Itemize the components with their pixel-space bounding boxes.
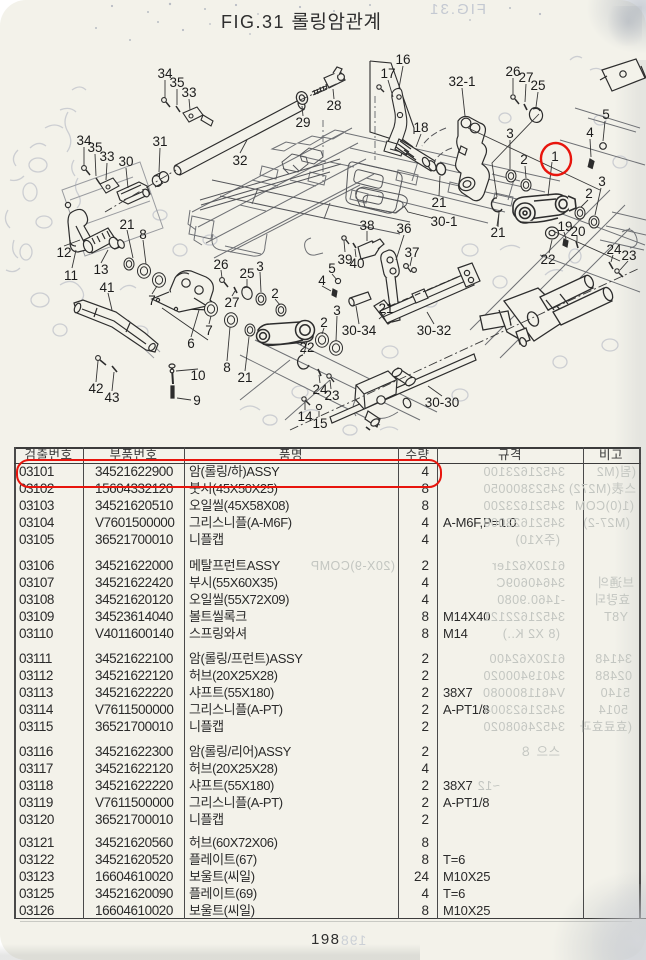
svg-text:30-30: 30-30 [425,395,460,410]
svg-text:40: 40 [349,256,364,271]
svg-text:25: 25 [239,266,254,281]
svg-text:30: 30 [118,154,133,169]
svg-text:18: 18 [413,120,428,135]
svg-text:26: 26 [213,257,228,272]
svg-text:3: 3 [598,174,606,189]
svg-text:25: 25 [530,78,545,93]
svg-text:4: 4 [318,273,326,288]
svg-text:3: 3 [506,126,514,141]
svg-text:14: 14 [297,409,313,424]
svg-text:30-1: 30-1 [430,214,457,229]
svg-text:41: 41 [99,280,114,295]
svg-text:36: 36 [396,221,411,236]
svg-text:9: 9 [193,393,201,408]
svg-text:3: 3 [256,259,264,274]
svg-text:24: 24 [606,242,622,257]
svg-text:13: 13 [93,262,108,277]
svg-text:21: 21 [119,217,134,232]
svg-text:28: 28 [326,98,341,113]
svg-text:2: 2 [271,286,279,301]
svg-text:21: 21 [237,370,252,385]
svg-text:7: 7 [148,293,156,308]
svg-text:7: 7 [205,323,213,338]
svg-text:12: 12 [56,245,71,260]
svg-text:16: 16 [395,52,410,67]
svg-text:22: 22 [299,340,314,355]
svg-text:22: 22 [540,252,555,267]
svg-text:10: 10 [190,368,205,383]
svg-text:5: 5 [602,107,610,122]
svg-text:17: 17 [380,66,395,81]
svg-text:33: 33 [181,85,196,100]
svg-text:33: 33 [99,149,114,164]
svg-text:23: 23 [621,248,636,263]
svg-text:6: 6 [187,336,195,351]
svg-text:32: 32 [232,153,247,168]
svg-text:2: 2 [585,186,593,201]
svg-text:30-34: 30-34 [342,323,377,338]
svg-text:31: 31 [152,134,167,149]
svg-text:21: 21 [378,301,393,316]
svg-text:20: 20 [570,224,585,239]
svg-text:27: 27 [224,295,239,310]
svg-text:37: 37 [404,245,419,260]
svg-text:2: 2 [320,315,328,330]
svg-text:30-32: 30-32 [417,323,452,338]
svg-text:43: 43 [104,390,119,405]
svg-text:1: 1 [551,149,559,164]
svg-text:29: 29 [295,115,310,130]
svg-text:38: 38 [359,218,374,233]
svg-text:21: 21 [431,195,446,210]
svg-text:32-1: 32-1 [448,74,475,89]
svg-text:4: 4 [586,125,594,140]
svg-text:21: 21 [490,225,505,240]
svg-text:8: 8 [223,360,231,375]
svg-text:42: 42 [88,381,103,396]
svg-text:23: 23 [324,388,339,403]
svg-text:15: 15 [312,416,327,431]
svg-text:5: 5 [328,261,336,276]
svg-text:3: 3 [333,303,341,318]
svg-text:11: 11 [64,268,78,283]
svg-text:8: 8 [139,227,147,242]
